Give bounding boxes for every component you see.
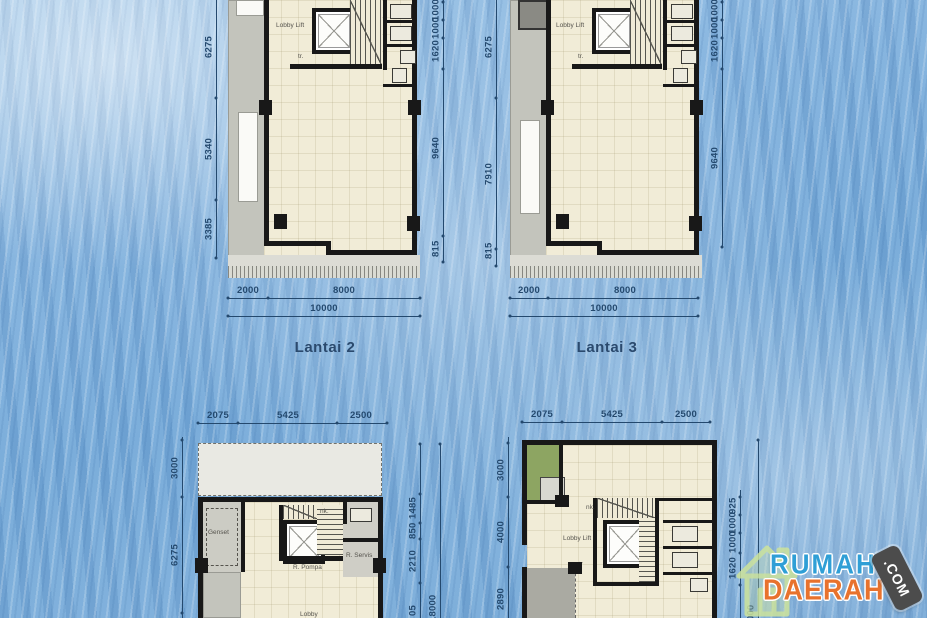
wall — [572, 64, 662, 69]
staircase — [597, 498, 655, 518]
dim-label: 1000 — [727, 515, 739, 532]
dim-label: 2890 — [495, 580, 507, 618]
dimension-tick — [419, 443, 422, 446]
column — [556, 214, 569, 229]
logo-com-text: .COM — [882, 557, 913, 599]
column — [373, 558, 386, 573]
terrace-edge — [575, 568, 576, 618]
dimension-tick — [521, 421, 524, 424]
wall — [343, 538, 378, 542]
room-label-lobby: Lobby — [300, 612, 318, 618]
wall — [655, 498, 659, 586]
wall — [659, 498, 712, 501]
logo-word-daerah: DAERAH — [763, 574, 885, 607]
floor-plan-ground-left: 2075 5425 2500 Genset R. Pompa nk. R. Se… — [0, 390, 470, 618]
bathroom-fixture — [350, 508, 372, 522]
dim-label: 1620 — [709, 37, 721, 65]
dim-label: 6275 — [483, 22, 495, 72]
dimension-tick — [561, 421, 564, 424]
dim-label: 925 — [727, 497, 739, 514]
dim-label: 2075 — [203, 411, 233, 421]
dimension-tick — [697, 315, 700, 318]
dimension-tick — [181, 439, 184, 442]
wall — [546, 0, 551, 246]
dimension-tick — [721, 68, 724, 71]
dim-label: 05 — [407, 604, 419, 618]
wall — [279, 556, 347, 561]
bathroom-fixture — [673, 68, 688, 83]
dimension-tick — [495, 265, 498, 268]
dimension-line — [522, 422, 710, 423]
wall — [667, 20, 697, 23]
dim-label: 10000 — [581, 304, 627, 314]
room-label-lobby-lift: Lobby Lift — [563, 536, 591, 543]
bathroom-fixture — [672, 526, 698, 542]
staircase — [283, 505, 317, 519]
dimension-tick — [386, 422, 389, 425]
dim-label: 7910 — [483, 148, 495, 200]
bathroom-fixture — [672, 552, 698, 568]
dim-label: 6275 — [169, 530, 181, 580]
bathroom-fixture — [671, 26, 693, 41]
wall — [593, 582, 659, 586]
dim-label: 5425 — [270, 411, 306, 421]
room-label-r-servis: R. Servis — [346, 553, 372, 560]
dim-label: 2075 — [527, 410, 557, 420]
dimension-tick — [721, 246, 724, 249]
column — [568, 562, 582, 574]
dimension-line — [182, 437, 183, 618]
dim-label: 8000 — [605, 286, 645, 296]
dimension-line — [440, 444, 441, 618]
dimension-line — [496, 0, 497, 266]
carport-area — [198, 443, 382, 496]
dimension-tick — [507, 496, 510, 499]
dimension-line — [508, 437, 509, 618]
dimension-line — [510, 316, 698, 317]
bathroom-fixture — [690, 578, 708, 592]
wall — [663, 546, 712, 549]
dimension-line — [198, 423, 387, 424]
wall — [241, 502, 245, 572]
wall — [663, 84, 697, 87]
wall — [546, 241, 602, 246]
side-strip — [203, 572, 241, 618]
annotation-nk: nk. — [320, 509, 329, 516]
dim-label: 1485 — [407, 494, 419, 523]
dimension-tick — [697, 297, 700, 300]
wall — [667, 44, 697, 47]
dim-label: 18000 — [427, 588, 439, 618]
dimension-tick — [181, 612, 184, 615]
wall — [343, 502, 347, 524]
dim-label: 3000 — [495, 450, 507, 490]
bathroom-fixture — [681, 50, 697, 64]
window-panel — [520, 120, 540, 214]
hatched-strip — [510, 266, 702, 278]
dimension-tick — [709, 421, 712, 424]
room-label-r-pompa: R. Pompa — [293, 565, 322, 572]
floor-title-lantai3: Lantai 3 — [562, 340, 652, 355]
terrace-area — [527, 568, 575, 618]
room-label-genset: Genset — [208, 530, 229, 537]
dimension-tick — [439, 443, 442, 446]
wall — [663, 0, 667, 70]
dim-label: 5425 — [594, 410, 630, 420]
dim-label: 2210 — [407, 540, 419, 582]
dim-label: 815 — [483, 240, 495, 262]
staircase — [630, 0, 662, 66]
genset-outline — [206, 508, 238, 566]
dimension-tick — [509, 297, 512, 300]
dimension-tick — [237, 422, 240, 425]
dim-label: 850 — [407, 523, 419, 539]
dimension-tick — [197, 422, 200, 425]
dimension-line — [420, 444, 421, 618]
apron — [510, 255, 702, 266]
column — [195, 558, 208, 573]
dimension-tick — [181, 496, 184, 499]
dim-label: 9640 — [709, 138, 721, 178]
dimension-tick — [495, 97, 498, 100]
dimension-line — [510, 298, 698, 299]
column — [690, 100, 703, 115]
wall — [279, 505, 283, 560]
dimension-tick — [507, 566, 510, 569]
dim-label: 2500 — [345, 411, 377, 421]
bathroom-fixture — [671, 4, 693, 19]
dim-label: 4000 — [495, 512, 507, 552]
dimension-tick — [336, 422, 339, 425]
column — [555, 495, 569, 507]
room-label-lobby-lift: Lobby Lift — [556, 23, 584, 30]
column — [689, 216, 702, 231]
dim-label: 2000 — [514, 286, 544, 296]
wall — [663, 572, 712, 575]
dimension-tick — [757, 439, 760, 442]
blueprint-page: Lobby Lift tr. 6275 5340 3385 1000 1000 — [0, 0, 927, 618]
dim-label: 2500 — [670, 410, 702, 420]
dimension-tick — [547, 297, 550, 300]
dim-label: 1000 — [709, 19, 721, 37]
floor-plan-lantai3: Lobby Lift tr. 6275 7910 815 1000 1000 1… — [0, 0, 927, 370]
dimension-tick — [507, 442, 510, 445]
annotation-nk: nk. — [586, 505, 595, 512]
watermark-logo: RUMAH DAERAH .COM — [730, 532, 927, 618]
wall — [712, 440, 717, 618]
column — [541, 100, 554, 115]
dimension-tick — [509, 315, 512, 318]
annotation-tr: tr. — [578, 54, 583, 61]
dim-label: 3000 — [169, 448, 181, 488]
wall — [663, 520, 712, 523]
dimension-tick — [661, 421, 664, 424]
